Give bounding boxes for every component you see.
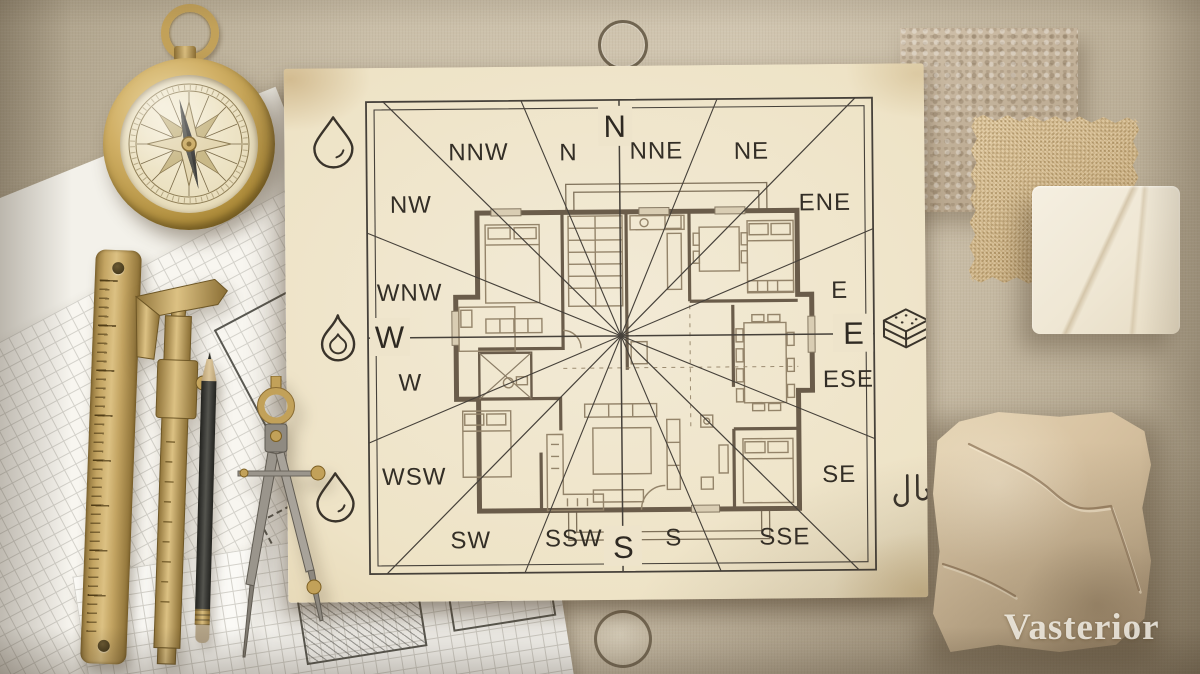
earth-layers-icon	[884, 309, 928, 347]
label-wnw: WNW	[377, 279, 443, 307]
bathroom-cross	[479, 353, 531, 399]
compass-hinge-screw	[271, 431, 282, 442]
drafting-compass	[218, 376, 333, 671]
compass-right-point	[308, 570, 323, 621]
compass-crossbar-nut	[240, 469, 248, 477]
compass-leg-screw	[307, 580, 321, 594]
ruler-hole	[98, 640, 110, 652]
embossed-ring-top	[598, 20, 648, 70]
pencil-eraser	[195, 625, 209, 643]
wind-icon	[895, 475, 929, 506]
flatlay-scene: N S W E NNW N NNE NE NW ENE WNW E W ESE …	[0, 0, 1200, 674]
compass-crossbar-knob	[311, 466, 325, 480]
vastu-chart-paper: N S W E NNW N NNE NE NW ENE WNW E W ESE …	[284, 63, 929, 603]
label-ene: ENE	[799, 189, 852, 216]
navigation-compass	[95, 2, 285, 228]
label-nne: NNE	[629, 137, 683, 164]
label-e-sector: E	[831, 277, 848, 304]
caliper-foot	[157, 648, 176, 665]
label-south: S	[613, 530, 635, 565]
compass-handle-ring	[261, 391, 291, 421]
label-east: E	[843, 316, 865, 351]
pencil-wood-cone	[201, 359, 217, 381]
label-north: N	[603, 109, 627, 144]
embossed-ring-bottom	[594, 610, 652, 668]
outer-walls	[455, 210, 814, 511]
water-drop-icon	[314, 117, 352, 167]
compass-left-point	[243, 585, 254, 657]
compass-rose	[120, 75, 258, 213]
label-nw: NW	[390, 192, 432, 219]
label-s-sector: S	[665, 524, 682, 551]
label-n-sector: N	[559, 139, 578, 166]
caliper-slider	[156, 359, 198, 418]
label-sse: SSE	[759, 523, 810, 550]
compass-face	[120, 75, 258, 213]
floor-plan	[451, 182, 817, 541]
interior-walls	[477, 210, 800, 511]
label-ssw: SSW	[545, 525, 603, 553]
compass-case	[103, 58, 275, 230]
label-nnw: NNW	[448, 139, 509, 167]
compass-right-leg	[276, 452, 314, 572]
label-sw: SW	[450, 527, 491, 554]
label-wsw: WSW	[382, 463, 447, 491]
vastu-diagram: N S W E NNW N NNE NE NW ENE WNW E W ESE …	[284, 63, 929, 603]
label-west: W	[375, 320, 406, 355]
marble-tile	[1032, 186, 1180, 334]
label-ne: NE	[734, 138, 770, 165]
windows	[451, 206, 817, 514]
label-w-sector: W	[398, 370, 422, 397]
label-ese: ESE	[823, 366, 874, 393]
compass-needle	[175, 98, 204, 190]
label-se: SE	[822, 461, 856, 488]
fire-icon	[322, 315, 354, 360]
pencil-ferrule	[195, 609, 210, 625]
brand-watermark: Vasterior	[1004, 606, 1160, 649]
